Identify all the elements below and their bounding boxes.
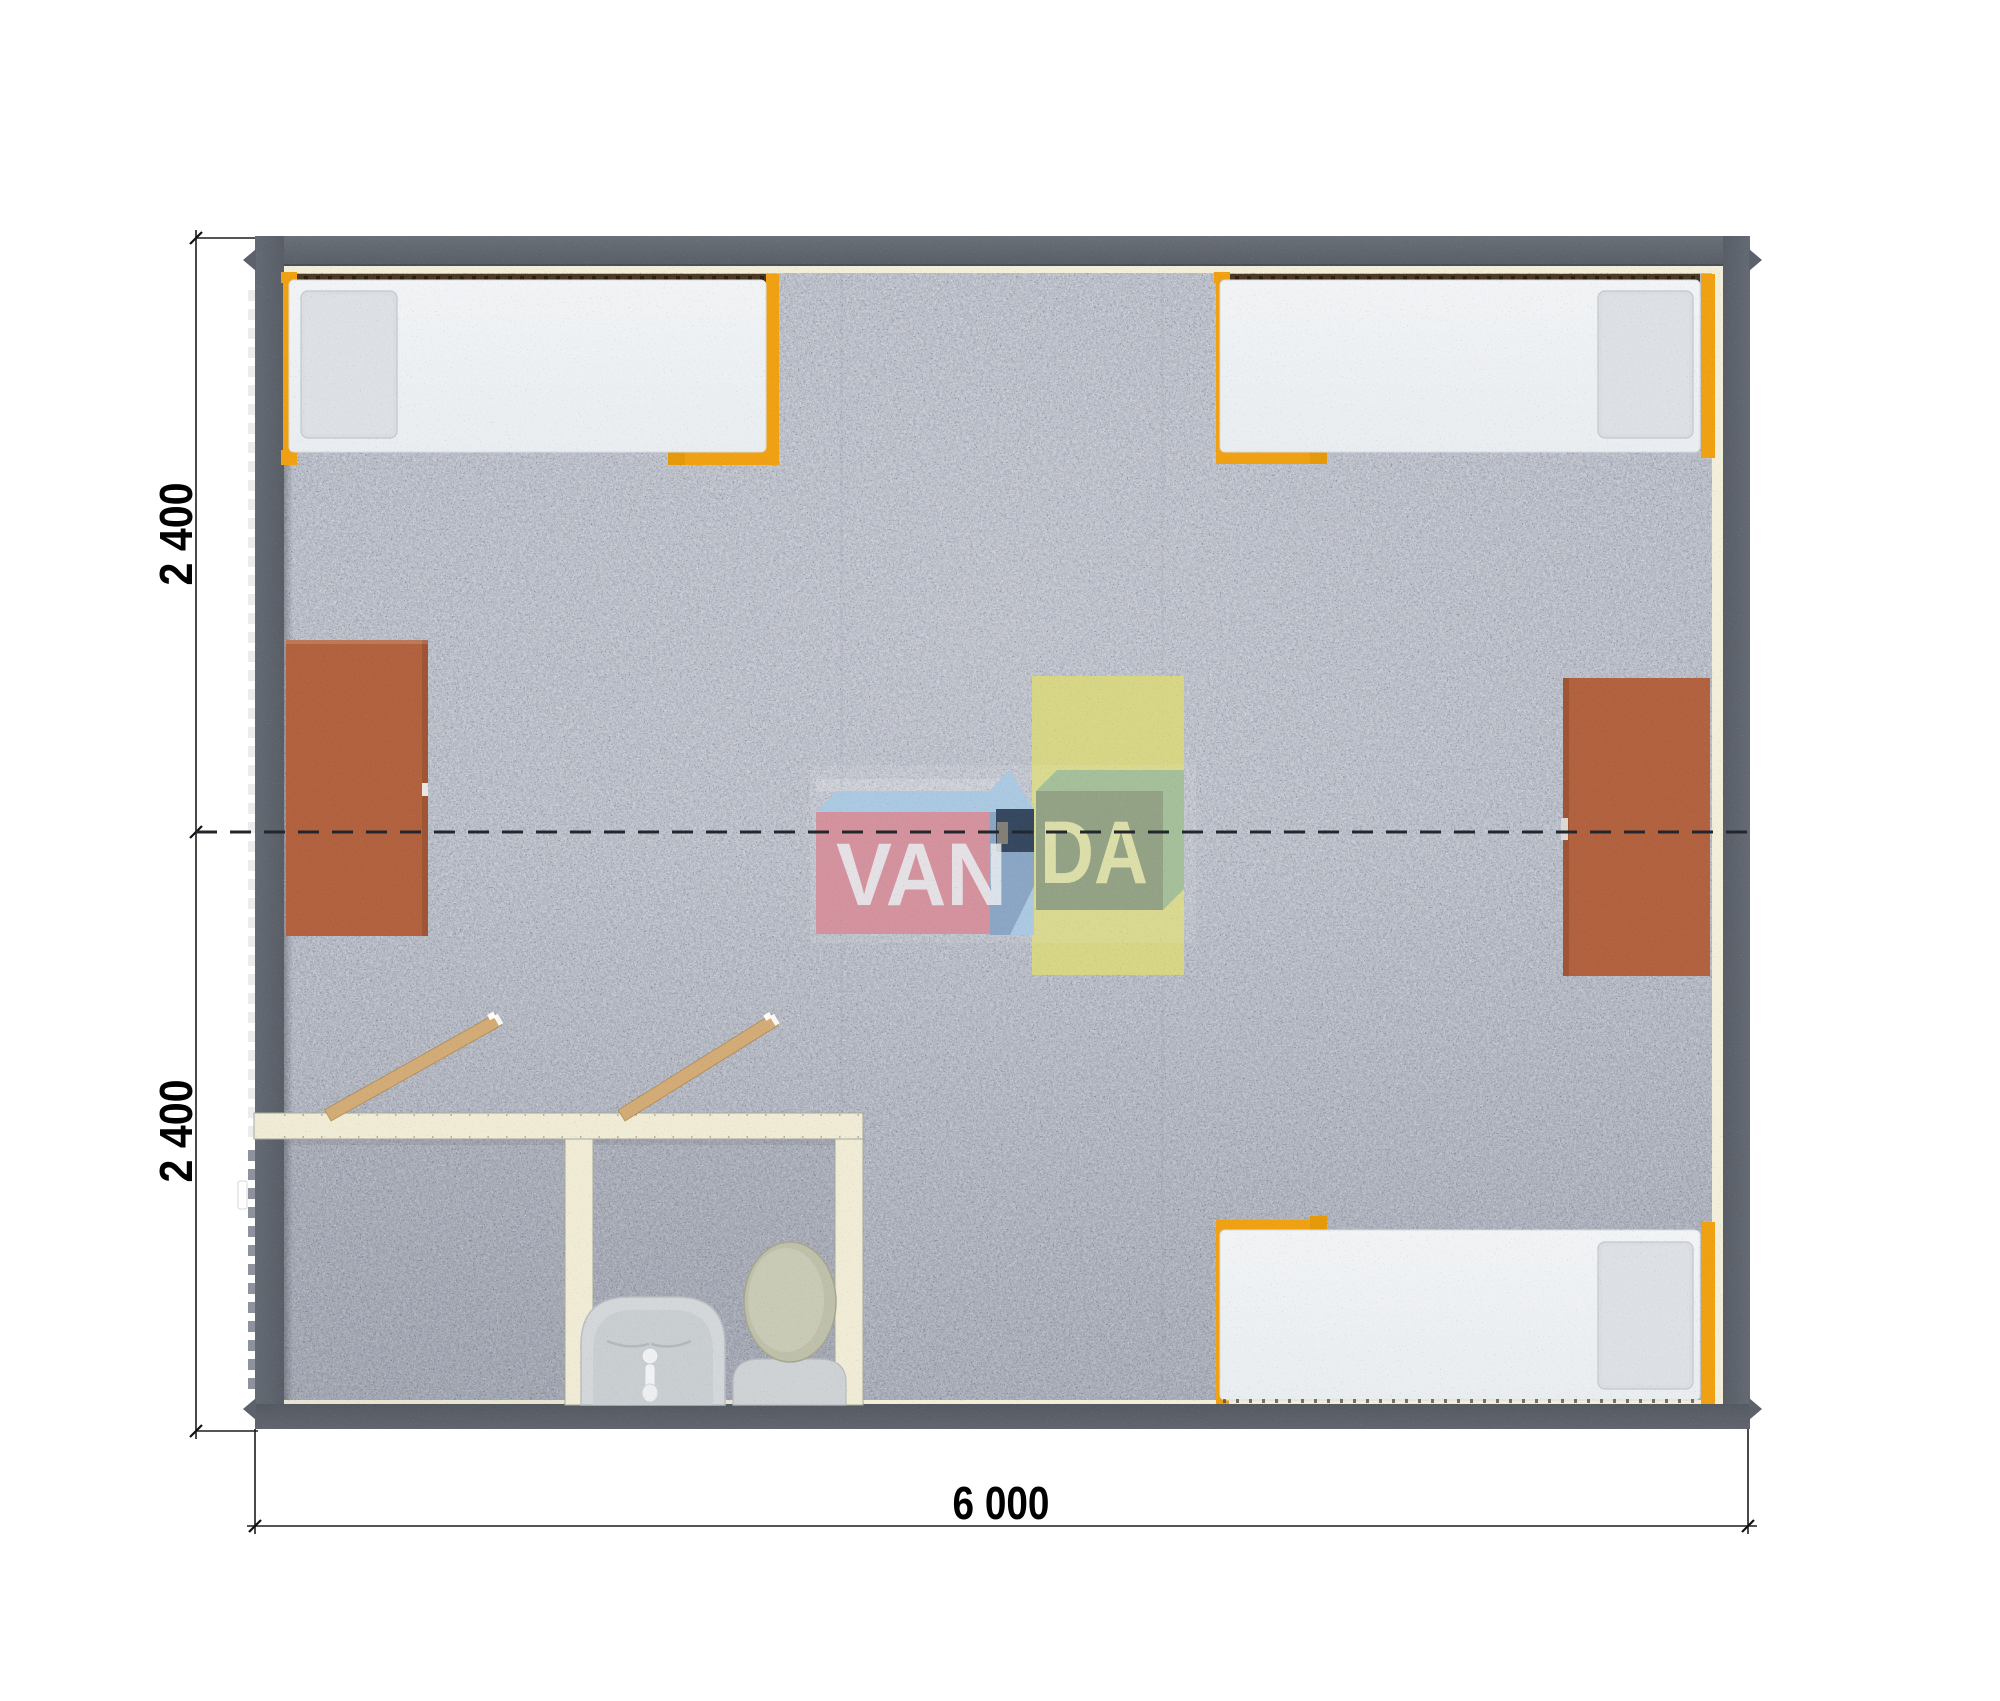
svg-text:6 000: 6 000: [953, 1477, 1050, 1529]
svg-text:2 400: 2 400: [150, 1080, 202, 1183]
svg-text:2 400: 2 400: [150, 483, 202, 586]
